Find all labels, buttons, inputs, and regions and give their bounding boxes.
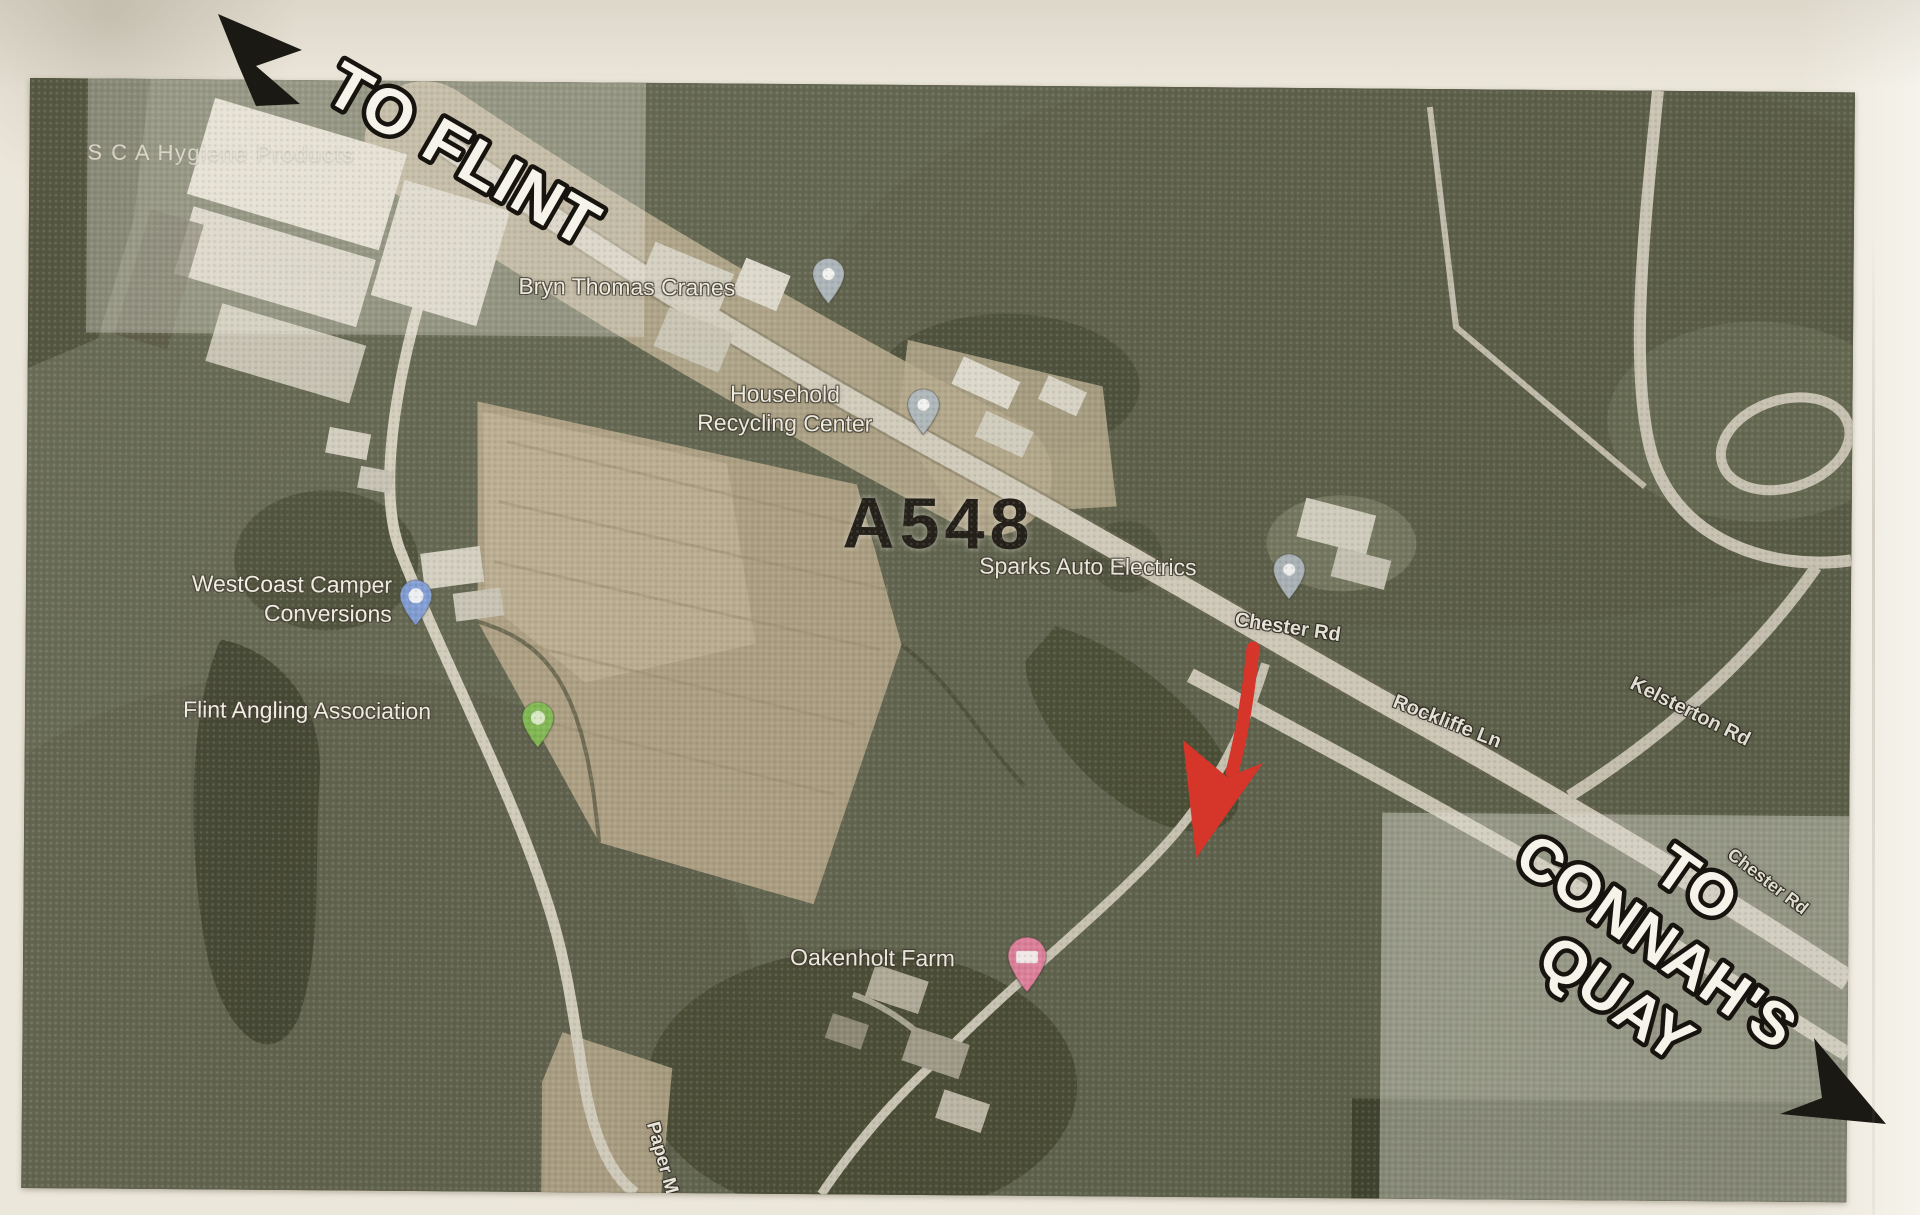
place-label-westcoast-camper: WestCoast Camper Conversions <box>124 569 392 630</box>
map-pin-icon-sparks-auto-electrics <box>1272 553 1306 601</box>
photo-of-printed-map: S C A Hygiene Products Bryn Thomas Crane… <box>0 0 1920 1215</box>
route-label-a548: A548 <box>842 482 1035 566</box>
map-pin-icon-household-recycling <box>906 388 940 436</box>
map-pin-icon-oakenholt-farm <box>1006 936 1048 994</box>
place-label-sca-hygiene: S C A Hygiene Products <box>87 138 355 168</box>
map-pin-icon-westcoast-camper <box>399 579 433 627</box>
satellite-map: S C A Hygiene Products Bryn Thomas Crane… <box>21 78 1855 1202</box>
place-label-bryn-thomas-cranes: Bryn Thomas Cranes <box>518 272 735 303</box>
place-label-flint-angling: Flint Angling Association <box>183 695 431 726</box>
map-pin-icon-flint-angling <box>521 701 555 749</box>
map-pin-icon-bryn-thomas-cranes <box>811 257 845 305</box>
satellite-imagery <box>21 78 1855 1202</box>
place-label-oakenholt-farm: Oakenholt Farm <box>790 943 955 974</box>
place-label-household-recycling: Household Recycling Center <box>672 379 897 440</box>
paper-crease <box>1872 230 1875 1215</box>
